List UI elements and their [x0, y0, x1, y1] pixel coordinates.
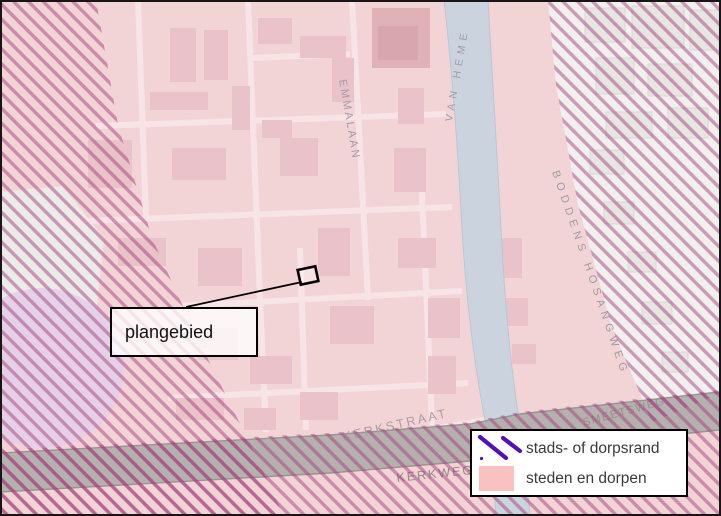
plangebied-callout-label: plangebied — [125, 322, 213, 343]
plangebied-callout: plangebied — [110, 307, 258, 357]
legend-label-steden: steden en dorpen — [526, 470, 647, 488]
dorpsrand-hatch-icon — [476, 435, 524, 463]
legend-label-dorpsrand: stads- of dorpsrand — [526, 440, 660, 458]
plangebied-marker — [298, 266, 319, 284]
map-figure: EMMALAAN VAN HEME BODDENS HOSANGWEG KERK… — [0, 0, 721, 516]
legend: stads- of dorpsrand steden en dorpen — [470, 429, 688, 497]
legend-row-steden: steden en dorpen — [472, 465, 647, 493]
legend-row-dorpsrand: stads- of dorpsrand — [472, 435, 660, 463]
dark-building-block — [372, 8, 430, 68]
steden-fill-swatch — [476, 465, 524, 493]
